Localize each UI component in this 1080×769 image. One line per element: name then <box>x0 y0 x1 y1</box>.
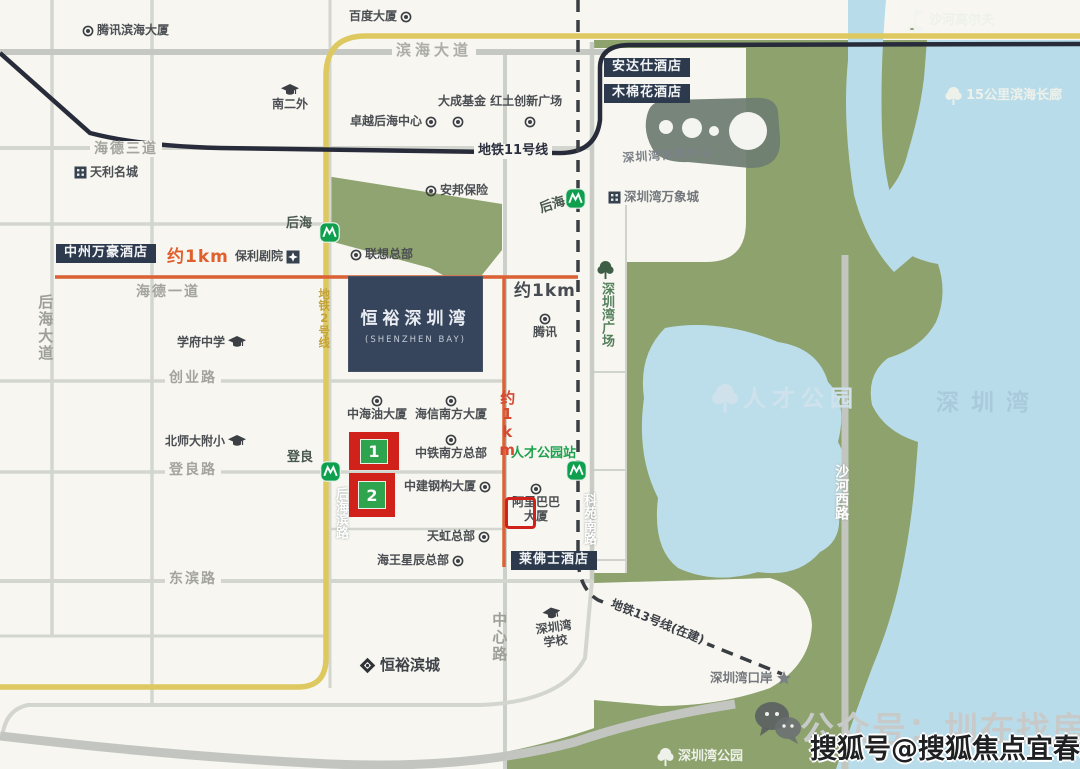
metro-line11-label-text: 地铁11号线 <box>478 144 548 159</box>
shahe-golf-text: 沙河高尔夫 <box>929 14 994 29</box>
wechat-icon <box>750 698 804 752</box>
houhai-avenue-text: 后海大道 <box>36 294 53 362</box>
binhai-avenue-label-text: 滨海大道 <box>396 42 472 59</box>
shahexi-road-text: 沙河西路 <box>833 464 849 520</box>
watermark-sohu-account: 搜狐号@搜狐焦点宜春站 <box>810 727 1080 766</box>
hengyu-bincheng-text: 恒裕滨城 <box>380 657 440 674</box>
map-base-graphics <box>0 0 1080 769</box>
golf-icon <box>904 8 926 34</box>
mumianhua-hotel: 木棉花酒店 <box>604 84 690 103</box>
raffles-hotel-text: 莱佛士酒店 <box>519 553 589 568</box>
tianli-mingcheng-text: 天利名城 <box>90 166 138 180</box>
houhai-avenue: 后海大道 <box>36 294 53 362</box>
dongbin-road: 东滨路 <box>165 571 221 587</box>
binhai-avenue-label: 滨海大道 <box>392 42 476 59</box>
dot-icon <box>371 395 383 407</box>
dacheng-fund-hongtu-plaza: 大成基金 红土创新广场 <box>438 95 562 109</box>
szbay-park: 深圳湾公园 <box>656 747 743 768</box>
dot-icon <box>445 434 457 446</box>
dongbin-road-text: 东滨路 <box>169 571 217 587</box>
project-box-hengyu-shenzhen-bay: 恒裕深圳湾 (SHENZHEN BAY) <box>348 276 483 372</box>
lenovo-hq: 联想总部 <box>350 248 413 262</box>
szbay-park-text: 深圳湾公园 <box>678 750 743 765</box>
szbay-plaza: 深圳湾广场 <box>596 260 615 347</box>
dot-icon <box>425 185 437 197</box>
zhuoyue-houhai-center: 卓越后海中心 <box>350 115 437 129</box>
zhonghaiyou-tower-text: 中海油大厦 <box>347 408 407 422</box>
metro-line11-label: 地铁11号线 <box>474 144 552 159</box>
shahe-golf: 沙河高尔夫 <box>904 8 994 34</box>
dengliang-road-text: 登良路 <box>169 462 217 478</box>
bsd-primary-school: 北师大附小 <box>165 435 246 449</box>
dengliang-road: 登良路 <box>165 462 221 478</box>
haide-1st-road: 海德一道 <box>136 284 200 300</box>
dot-icon <box>479 481 491 493</box>
cap-icon <box>228 336 246 349</box>
approx-1km-south: 约1km <box>498 390 515 459</box>
metro-line2-label-text: 地铁2号线 <box>317 288 330 348</box>
lenovo-hq-text: 联想总部 <box>365 248 413 262</box>
approx-1km-west-text: 约1km <box>167 248 229 268</box>
approx-1km-south-text: 约1km <box>498 390 515 459</box>
approx-1km-east-text: 约1km <box>514 282 576 302</box>
dot-icon <box>400 11 412 23</box>
haixin-south-tower-text: 海信南方大厦 <box>415 408 487 422</box>
tencent-hq: 腾讯 <box>533 313 557 340</box>
chuangye-road-text: 创业路 <box>169 370 217 386</box>
cap-icon <box>228 435 246 448</box>
marker-2-number: 2 <box>358 481 386 509</box>
tencent-binhai-tower-text: 腾讯滨海大厦 <box>97 24 169 38</box>
szbay-school: 深圳湾 学校 <box>533 605 574 651</box>
shenzhen-bay-name: 深圳湾 <box>936 390 1041 416</box>
project-name-en: (SHENZHEN BAY) <box>365 335 466 345</box>
treewlg-icon <box>710 382 740 416</box>
cap-icon <box>281 84 299 97</box>
anbang-insurance: 安邦保险 <box>425 184 488 198</box>
bldg-icon <box>608 191 621 204</box>
dot-icon <box>452 116 464 128</box>
treew-icon <box>944 86 963 107</box>
chuangye-road: 创业路 <box>165 370 221 386</box>
metro-icon <box>565 188 586 209</box>
dengliang-station: 登良 <box>287 451 313 466</box>
talent-park-text: 人才公园 <box>743 386 859 412</box>
metro-icon-dengliang <box>320 461 341 482</box>
zhongzhou-marriott-hotel-text: 中州万豪酒店 <box>64 246 148 261</box>
metro-icon <box>319 222 340 243</box>
mixc-label: 深圳湾万象城 <box>608 190 699 204</box>
xuefu-middle-school-text: 学府中学 <box>177 336 225 350</box>
anbang-insurance-text: 安邦保险 <box>440 184 488 198</box>
houhai-station-line2-text: 后海 <box>286 217 312 232</box>
poi-dot-dacheng <box>452 116 464 128</box>
tencent-binhai-tower: 腾讯滨海大厦 <box>82 24 169 38</box>
coastal-corridor-15km-text: 15公里滨海长廊 <box>966 89 1062 104</box>
metro-icon <box>320 461 341 482</box>
metro-line2-label: 地铁2号线 <box>317 288 330 348</box>
andaz-hotel: 安达仕酒店 <box>604 58 690 77</box>
szbay-port-text: 深圳湾口岸 <box>710 671 773 685</box>
dot-icon <box>350 249 362 261</box>
zhongtie-south-hq: 中铁南方总部 <box>415 434 487 461</box>
dot-icon <box>524 116 536 128</box>
coastal-corridor-15km: 15公里滨海长廊 <box>944 86 1062 107</box>
haide-3rd-road: 海德三道 <box>90 141 162 157</box>
star-icon <box>776 670 792 686</box>
treew-icon <box>656 747 675 768</box>
zhongtie-south-hq-text: 中铁南方总部 <box>415 447 487 461</box>
dot-icon <box>478 531 490 543</box>
neptunus-hq-text: 海王星辰总部 <box>377 554 449 568</box>
haide-1st-road-text: 海德一道 <box>136 284 200 300</box>
marker-1-number: 1 <box>360 439 388 464</box>
dengliang-station-text: 登良 <box>287 451 313 466</box>
keyuan-south-road-text: 科苑南路 <box>580 493 595 545</box>
haixin-south-tower: 海信南方大厦 <box>415 395 487 422</box>
neptunus-hq: 海王星辰总部 <box>377 554 464 568</box>
tianhong-hq: 天虹总部 <box>427 530 490 544</box>
mixc-label-text: 深圳湾万象城 <box>624 190 699 204</box>
tencent-hq-text: 腾讯 <box>533 326 557 340</box>
dot-icon <box>539 313 551 325</box>
mumianhua-hotel-text: 木棉花酒店 <box>612 86 682 101</box>
metro-icon-houhai-l11 <box>565 188 586 209</box>
szbay-port: 深圳湾口岸 <box>710 670 792 686</box>
bsd-primary-school-text: 北师大附小 <box>165 435 225 449</box>
keyuan-south-road: 科苑南路 <box>580 493 595 545</box>
szbay-plaza-text: 深圳湾广场 <box>598 282 613 347</box>
andaz-hotel-text: 安达仕酒店 <box>612 60 682 75</box>
poly-theatre-text: 保利剧院 <box>235 250 283 264</box>
shahexi-road: 沙河西路 <box>833 464 849 520</box>
location-marker-2: 2 <box>349 473 395 517</box>
talent-park: 人才公园 <box>710 382 859 416</box>
location-marker-1: 1 <box>349 432 399 470</box>
dot-icon <box>452 555 464 567</box>
highlight-frame <box>505 497 536 529</box>
houhaibin-road: 后海滨路 <box>332 487 347 539</box>
dot-icon <box>530 483 542 495</box>
metro-icon-houhai-l2 <box>319 222 340 243</box>
approx-1km-east: 约1km <box>514 282 576 302</box>
zhongxin-road-text: 中心路 <box>490 612 507 663</box>
hengyu-bincheng: 恒裕滨城 <box>358 656 440 675</box>
zhongjian-steel-tower: 中建钢构大厦 <box>404 480 491 494</box>
starbox-icon <box>286 250 300 264</box>
shenzhen-bay-name-text: 深圳湾 <box>936 390 1041 416</box>
baidu-tower: 百度大厦 <box>349 10 412 24</box>
tianli-mingcheng: 天利名城 <box>74 166 138 180</box>
metro-icon-talent-park <box>566 460 587 481</box>
treeg-icon <box>596 260 615 281</box>
bldg-icon <box>74 166 87 179</box>
dacheng-fund-hongtu-plaza-text: 大成基金 红土创新广场 <box>438 95 562 109</box>
baidu-tower-text: 百度大厦 <box>349 10 397 24</box>
nanerwai-school: 南二外 <box>272 84 308 112</box>
zhonghaiyou-tower: 中海油大厦 <box>347 395 407 422</box>
houhai-station-line2: 后海 <box>286 217 312 232</box>
nanerwai-school-text: 南二外 <box>272 98 308 112</box>
raffles-hotel: 莱佛士酒店 <box>511 551 597 570</box>
project-name-cn: 恒裕深圳湾 <box>361 304 471 329</box>
tianhong-hq-text: 天虹总部 <box>427 530 475 544</box>
poly-theatre: 保利剧院 <box>235 250 300 264</box>
approx-1km-west: 约1km <box>167 248 229 268</box>
diamond-icon <box>358 656 377 675</box>
zhuoyue-houhai-center-text: 卓越后海中心 <box>350 115 422 129</box>
dot-icon <box>445 395 457 407</box>
zhongzhou-marriott-hotel: 中州万豪酒店 <box>56 244 156 263</box>
map-screenshot: 腾讯滨海大厦百度大厦滨海大道南二外卓越后海中心大成基金 红土创新广场地铁11号线… <box>0 0 1080 769</box>
metro-icon <box>566 460 587 481</box>
haide-3rd-road-text: 海德三道 <box>94 141 158 157</box>
xuefu-middle-school: 学府中学 <box>177 336 246 350</box>
zhongjian-steel-tower-text: 中建钢构大厦 <box>404 480 476 494</box>
dot-icon <box>82 25 94 37</box>
dot-icon <box>425 116 437 128</box>
szbay-school-text: 深圳湾 学校 <box>535 619 575 651</box>
poi-dot-hongtu <box>524 116 536 128</box>
zhongxin-road: 中心路 <box>490 612 507 663</box>
houhaibin-road-text: 后海滨路 <box>332 487 347 539</box>
